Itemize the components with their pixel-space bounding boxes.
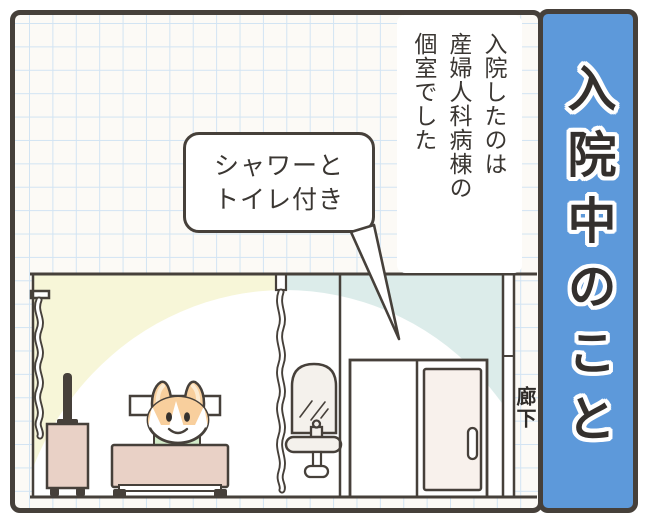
narration-box: 入院したのは 産婦人科病棟の 個室でした xyxy=(397,15,522,273)
door-handle-icon xyxy=(468,428,477,459)
speech-bubble-text: シャワーと トイレ付き xyxy=(214,149,344,217)
bathroom-unit xyxy=(350,360,487,497)
speech-bubble: シャワーと トイレ付き xyxy=(183,132,375,233)
corridor-label: 廊下 xyxy=(515,386,539,430)
chapter-title-banner: 入院中のこと xyxy=(538,9,638,513)
chapter-title-text: 入院中のこと xyxy=(553,63,624,459)
blanket xyxy=(112,445,228,487)
